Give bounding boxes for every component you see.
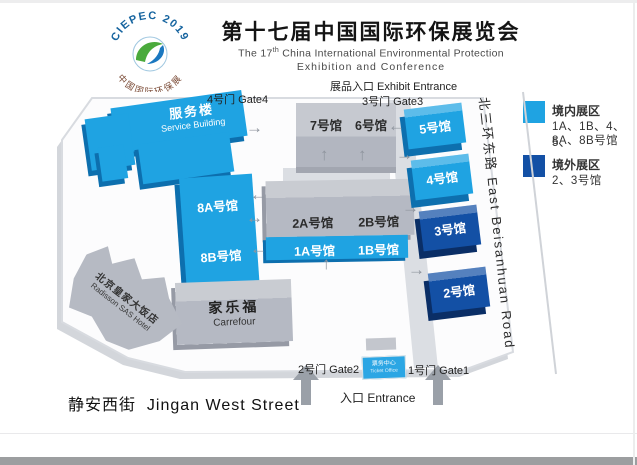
- hall-2: 2号馆: [428, 267, 490, 314]
- arrow-left-icon: ←: [250, 186, 267, 203]
- hall-2b-label: 2B号馆: [358, 211, 399, 231]
- arrow-left-icon: ←: [250, 240, 267, 257]
- exhibit-entrance-label: 展品入口 Exhibit Entrance: [330, 78, 457, 94]
- service-building-block: [98, 144, 128, 181]
- arrow-left-icon: ←: [388, 117, 405, 134]
- south-street-en: Jingan West Street: [147, 397, 300, 414]
- hall-2a-label: 2A号馆: [292, 212, 333, 232]
- arrow-right-icon: →: [402, 199, 419, 216]
- hall-3-label: 3号馆: [433, 217, 467, 240]
- arrow-up-icon: ↑: [320, 146, 329, 163]
- hall-8ab: 8A号馆 8B号馆: [179, 174, 260, 295]
- hall-2-label: 2号馆: [442, 279, 476, 302]
- hall-1ab: 1A号馆 1B号馆: [266, 235, 408, 260]
- east-road-edge: [523, 92, 556, 374]
- gate3-label: 3号门 Gate3: [362, 93, 423, 109]
- entrance-arrow-up-icon: [433, 379, 443, 405]
- gate4-label: 4号门 Gate4: [207, 91, 268, 107]
- arrow-right-icon: →: [246, 119, 263, 136]
- arrow-up-icon: ↑: [322, 255, 331, 272]
- arrow-up-icon: ↑: [358, 146, 367, 163]
- hall-2ab: 2A号馆 2B号馆: [266, 179, 415, 238]
- hall-4-label: 4号馆: [425, 166, 459, 189]
- arrow-left-right-icon: ↔: [246, 209, 263, 226]
- hall-3: 3号馆: [419, 205, 481, 252]
- hall-7-label: 7号馆: [310, 115, 342, 134]
- logo-arc-bottom-text: 中国国际环保展: [116, 72, 185, 92]
- small-building: [366, 337, 396, 350]
- carrefour-cn: 家乐福: [208, 296, 260, 318]
- arrow-right-icon: →: [396, 146, 413, 163]
- hall-1b-label: 1B号馆: [358, 239, 399, 259]
- south-street-cn: 静安西街: [68, 397, 136, 414]
- hall-4: 4号馆: [411, 154, 473, 201]
- entrance-label: 入口 Entrance: [340, 389, 415, 406]
- south-street-label: 静安西街 Jingan West Street: [68, 391, 300, 415]
- hall-6-label: 6号馆: [355, 115, 387, 134]
- entrance-arrow-up-icon: [301, 379, 311, 405]
- carrefour-building: 家乐福 Carrefour: [175, 279, 293, 345]
- hall-76: 7号馆 6号馆: [296, 103, 396, 167]
- venue-map-page: CIEPEC 2019 中国国际环保展 第十七届中国国际环保展览会 The 17…: [0, 0, 637, 465]
- hall-8a-label: 8A号馆: [180, 194, 254, 218]
- ticket-office: 票务中心 Ticket Office: [362, 355, 407, 380]
- hall-5: 5号馆: [404, 103, 466, 150]
- ciepec-logo: CIEPEC 2019 中国国际环保展: [103, 8, 198, 92]
- carrefour-en: Carrefour: [213, 316, 256, 328]
- gate1-label: 1号门 Gate1: [408, 362, 469, 378]
- hall-5-label: 5号馆: [418, 115, 452, 138]
- hall-8b-label: 8B号馆: [184, 243, 258, 267]
- ticket-office-en: Ticket Office: [370, 368, 398, 375]
- arrow-right-icon: →: [408, 261, 425, 278]
- gate2-label: 2号门 Gate2: [298, 361, 359, 377]
